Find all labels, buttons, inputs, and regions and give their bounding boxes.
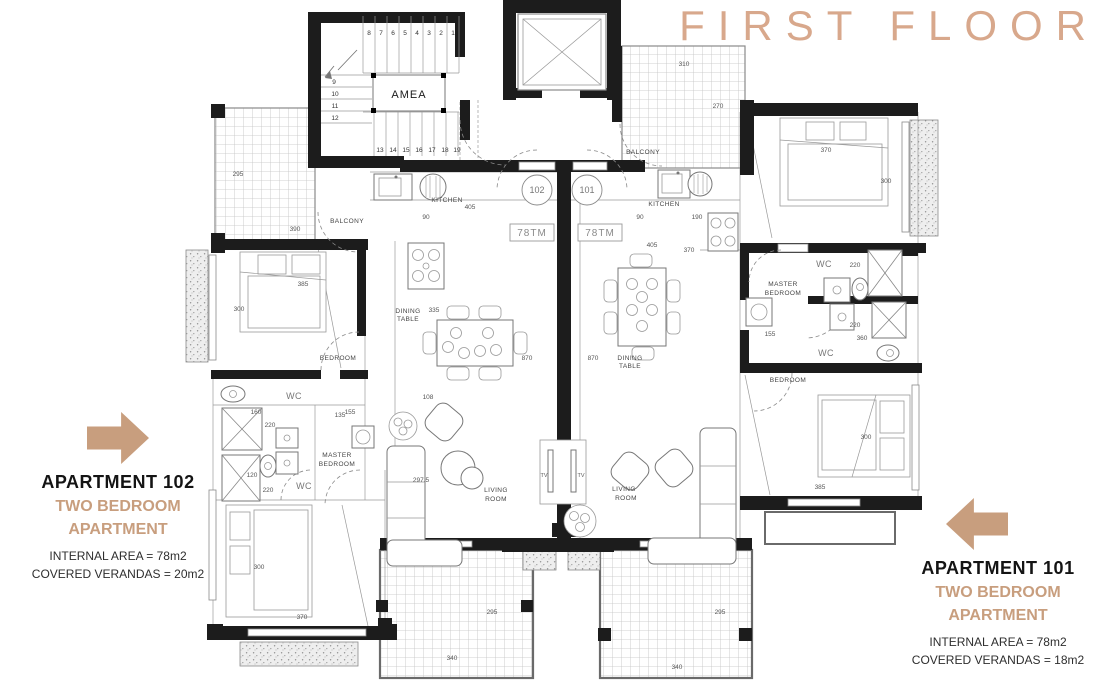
svg-text:295: 295 (715, 609, 726, 616)
balcony-left-label: BALCONY (330, 218, 364, 225)
svg-text:5: 5 (403, 30, 407, 37)
wc-label-4: WC (818, 348, 834, 358)
area-101-label: 78TM (585, 228, 615, 239)
svg-text:BEDROOM: BEDROOM (319, 461, 355, 468)
svg-text:135: 135 (335, 412, 346, 419)
svg-text:405: 405 (647, 242, 658, 249)
svg-text:DINING: DINING (617, 355, 642, 362)
apartment-101-internal-area: INTERNAL AREA = 78m2 (888, 633, 1108, 651)
svg-text:155: 155 (765, 331, 776, 338)
svg-text:16: 16 (415, 147, 423, 154)
svg-text:270: 270 (713, 103, 724, 110)
svg-text:8: 8 (367, 30, 371, 37)
apartment-102-covered-verandas: COVERED VERANDAS = 20m2 (18, 565, 218, 583)
apartment-101-type-line1: TWO BEDROOM (888, 581, 1108, 604)
svg-text:13: 13 (376, 147, 384, 154)
svg-text:14: 14 (389, 147, 397, 154)
svg-text:220: 220 (265, 422, 276, 429)
svg-text:15: 15 (402, 147, 410, 154)
svg-text:300: 300 (254, 564, 265, 571)
apartment-102-type-line1: TWO BEDROOM (18, 495, 218, 518)
svg-text:370: 370 (297, 614, 308, 621)
svg-text:12: 12 (331, 115, 339, 122)
elevator (518, 14, 606, 90)
svg-text:1: 1 (451, 30, 455, 37)
svg-text:310: 310 (679, 61, 690, 68)
svg-text:ROOM: ROOM (615, 495, 637, 502)
svg-text:220: 220 (850, 322, 861, 329)
bedroom-left-label: BEDROOM (320, 355, 356, 362)
svg-text:BEDROOM: BEDROOM (765, 290, 801, 297)
svg-text:6: 6 (391, 30, 395, 37)
svg-text:220: 220 (263, 487, 274, 494)
svg-text:385: 385 (815, 484, 826, 491)
svg-text:3: 3 (427, 30, 431, 37)
svg-text:300: 300 (861, 434, 872, 441)
tv-left-label: TV (540, 473, 547, 479)
svg-text:9: 9 (332, 79, 336, 86)
staircase: AMEA 8 7 6 5 4 3 2 1 9 10 11 12 13 14 15… (321, 16, 461, 156)
svg-text:870: 870 (588, 355, 599, 362)
page: FIRST FLOOR (0, 0, 1113, 697)
svg-text:TABLE: TABLE (619, 363, 641, 370)
apartment-101-name: APARTMENT 101 (888, 558, 1108, 579)
unit-101-label: 101 (579, 185, 594, 195)
svg-text:LIVING: LIVING (484, 487, 508, 494)
apartment-101-covered-verandas: COVERED VERANDAS = 18m2 (888, 651, 1108, 669)
area-102-label: 78TM (517, 228, 547, 239)
svg-text:390: 390 (290, 226, 301, 233)
wc-label-2: WC (296, 481, 312, 491)
svg-text:90: 90 (422, 214, 430, 221)
apartment-102-name: APARTMENT 102 (18, 472, 218, 493)
svg-text:300: 300 (234, 306, 245, 313)
svg-text:297.5: 297.5 (413, 477, 430, 484)
bedroom-right-label: BEDROOM (770, 377, 806, 384)
svg-text:155: 155 (345, 409, 356, 416)
svg-text:11: 11 (332, 103, 339, 110)
amea-label: AMEA (391, 89, 426, 101)
svg-text:370: 370 (821, 147, 832, 154)
wc-label-3: WC (816, 259, 832, 269)
svg-text:108: 108 (423, 394, 434, 401)
unit-102-label: 102 (529, 185, 544, 195)
svg-text:DINING: DINING (395, 308, 420, 315)
svg-text:295: 295 (487, 609, 498, 616)
svg-text:160: 160 (251, 409, 262, 416)
svg-text:340: 340 (672, 664, 683, 671)
svg-text:340: 340 (447, 655, 458, 662)
arrow-right-icon (87, 412, 149, 464)
balcony-right-label: BALCONY (626, 149, 660, 156)
svg-text:ROOM: ROOM (485, 496, 507, 503)
svg-text:TABLE: TABLE (397, 316, 419, 323)
apartment-101-info: APARTMENT 101 TWO BEDROOM APARTMENT INTE… (888, 498, 1108, 669)
kitchens (374, 170, 738, 289)
svg-text:MASTER: MASTER (768, 281, 798, 288)
svg-text:10: 10 (331, 91, 339, 98)
apartment-102-type-line2: APARTMENT (18, 518, 218, 541)
tv-right-label: TV (577, 473, 584, 479)
svg-text:17: 17 (428, 147, 436, 154)
svg-text:19: 19 (453, 147, 461, 154)
arrow-left-icon (946, 498, 1008, 550)
kitchen-left-label: KITCHEN (431, 197, 462, 204)
svg-text:405: 405 (465, 204, 476, 211)
apartment-102-internal-area: INTERNAL AREA = 78m2 (18, 547, 218, 565)
svg-text:MASTER: MASTER (322, 452, 352, 459)
svg-text:120: 120 (247, 472, 258, 479)
svg-text:4: 4 (415, 30, 419, 37)
svg-text:7: 7 (379, 30, 383, 37)
svg-text:870: 870 (522, 355, 533, 362)
svg-text:220: 220 (850, 262, 861, 269)
svg-text:300: 300 (881, 178, 892, 185)
svg-text:LIVING: LIVING (612, 486, 636, 493)
svg-text:385: 385 (298, 281, 309, 288)
svg-text:360: 360 (857, 335, 868, 342)
svg-text:370: 370 (684, 247, 695, 254)
svg-text:2: 2 (439, 30, 443, 37)
svg-text:335: 335 (429, 307, 440, 314)
kitchen-right-label: KITCHEN (648, 201, 679, 208)
wc-label-1: WC (286, 391, 302, 401)
svg-text:90: 90 (636, 214, 644, 221)
apartment-101-type-line2: APARTMENT (888, 604, 1108, 627)
svg-text:295: 295 (233, 171, 244, 178)
svg-text:190: 190 (692, 214, 703, 221)
apartment-102-info: APARTMENT 102 TWO BEDROOM APARTMENT INTE… (18, 412, 218, 583)
svg-text:18: 18 (441, 147, 449, 154)
